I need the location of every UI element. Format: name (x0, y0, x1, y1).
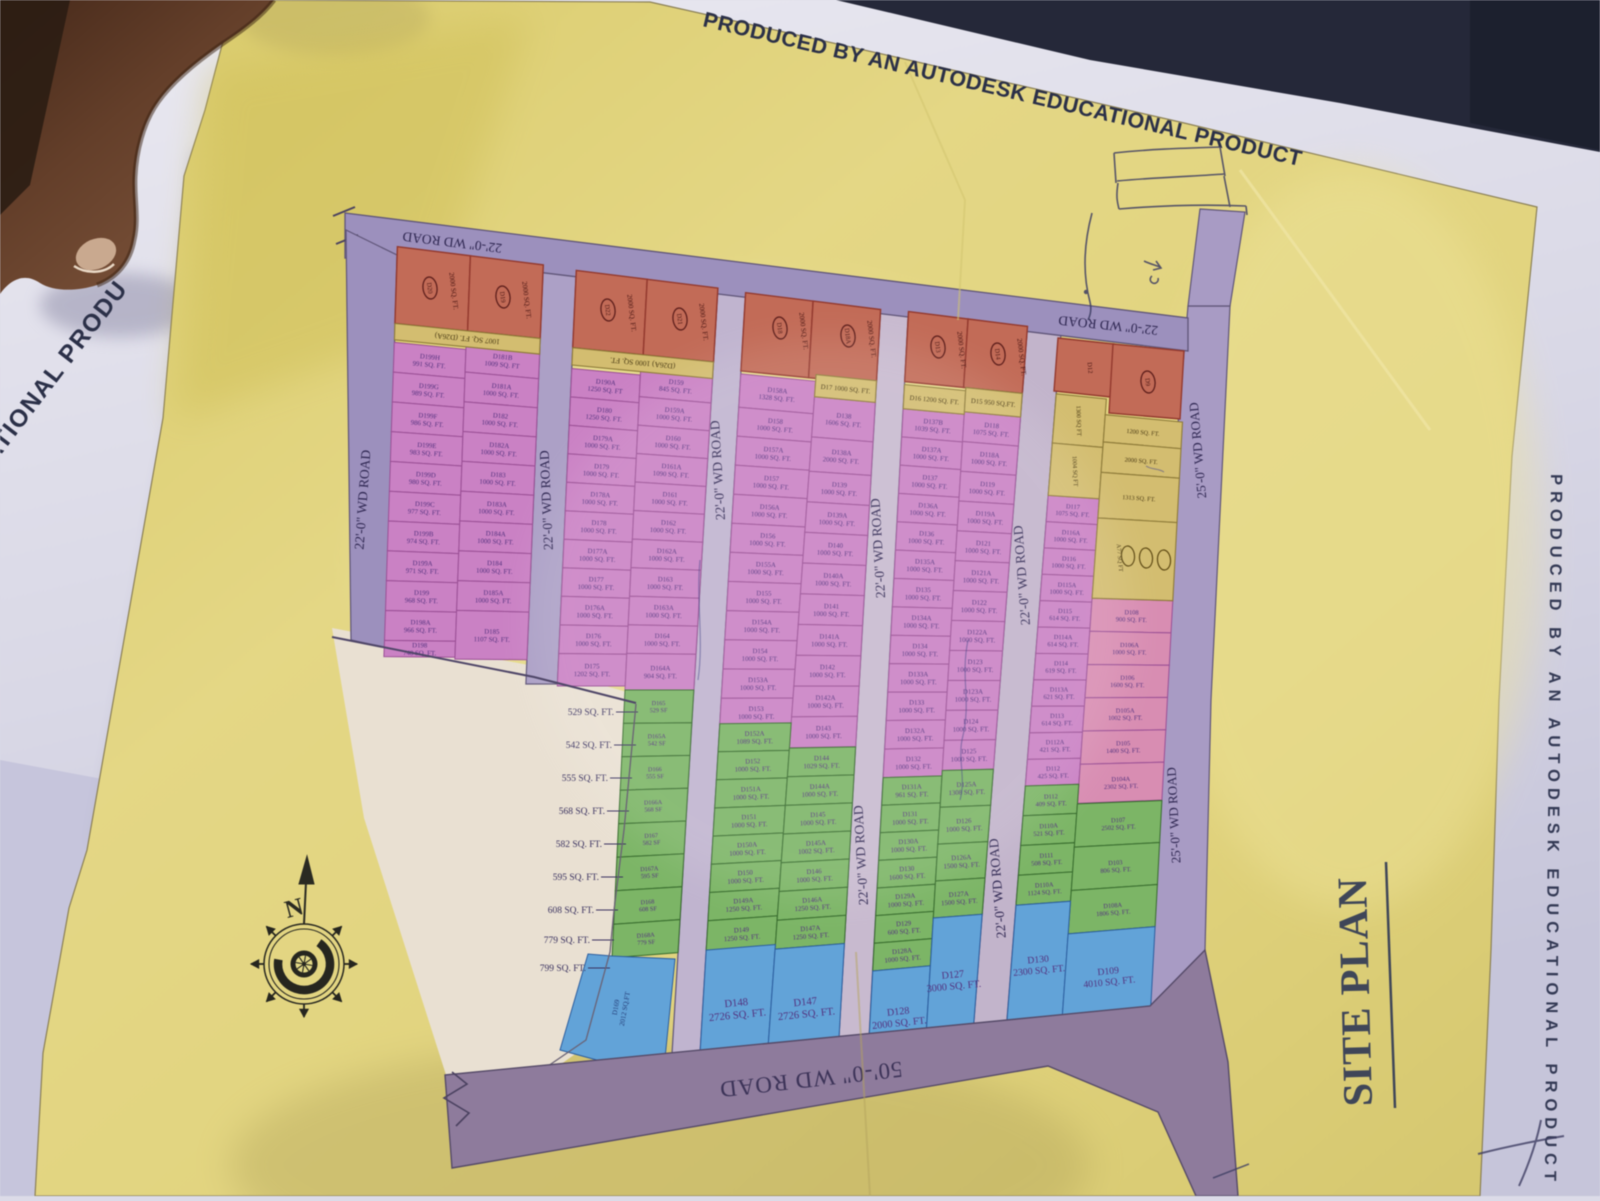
svg-text:D185A: D185A (483, 590, 503, 598)
svg-text:D199A: D199A (412, 560, 432, 568)
svg-text:D199C: D199C (415, 501, 435, 509)
svg-text:D14: D14 (993, 348, 1001, 361)
svg-text:D184: D184 (487, 560, 503, 568)
svg-text:D199: D199 (414, 590, 430, 597)
svg-text:D19: D19 (498, 291, 506, 303)
svg-text:1000 SQ. FT.: 1000 SQ. FT. (475, 597, 512, 605)
svg-text:D13: D13 (933, 341, 941, 353)
svg-text:D129: D129 (896, 920, 912, 928)
svg-text:D9: D9 (1143, 378, 1151, 387)
svg-text:D199D: D199D (416, 471, 436, 479)
svg-text:D12: D12 (1086, 362, 1094, 374)
svg-text:971 SQ. FT.: 971 SQ. FT. (406, 568, 440, 576)
svg-text:582 SQ. FT.: 582 SQ. FT. (556, 840, 602, 850)
svg-text:D149: D149 (734, 926, 750, 934)
svg-text:D105A: D105A (1116, 708, 1135, 715)
svg-text:SITE PLAN: SITE PLAN (1330, 876, 1382, 1107)
svg-text:974 SQ. FT.: 974 SQ. FT. (407, 538, 441, 546)
svg-text:1107 SQ. FT.: 1107 SQ. FT. (474, 636, 511, 644)
svg-text:D183: D183 (490, 471, 506, 479)
svg-text:799 SQ. FT.: 799 SQ. FT. (540, 964, 586, 974)
svg-text:D198: D198 (412, 642, 428, 649)
svg-text:D183A: D183A (487, 501, 507, 509)
svg-text:779 SF: 779 SF (637, 939, 656, 947)
svg-text:D185: D185 (484, 629, 500, 636)
svg-text:595 SQ. FT.: 595 SQ. FT. (553, 873, 599, 883)
svg-text:595 SF: 595 SF (641, 872, 660, 880)
svg-text:568 SQ. FT.: 568 SQ. FT. (559, 807, 605, 817)
svg-text:608 SF: 608 SF (639, 905, 658, 913)
svg-text:D198A: D198A (410, 619, 430, 626)
svg-text:D184A: D184A (486, 530, 506, 538)
svg-text:968 SQ. FT.: 968 SQ. FT. (405, 597, 439, 605)
svg-text:1000 SQ. FT.: 1000 SQ. FT. (476, 568, 513, 576)
svg-text:D22: D22 (603, 304, 611, 316)
svg-text:1300 SQ FT: 1300 SQ FT (1074, 405, 1082, 436)
svg-text:D182: D182 (493, 412, 509, 420)
svg-text:2302 SQ. FT.: 2302 SQ. FT. (1104, 783, 1139, 791)
svg-text:1002 SQ. FT.: 1002 SQ. FT. (1108, 715, 1143, 722)
svg-text:D199B: D199B (414, 530, 434, 538)
svg-text:D105: D105 (1116, 740, 1130, 747)
svg-text:D21: D21 (675, 313, 683, 325)
svg-text:1400 SQ. FT.: 1400 SQ. FT. (1106, 747, 1141, 755)
svg-text:608 SQ. FT.: 608 SQ. FT. (548, 906, 594, 916)
svg-text:779 SQ. FT.: 779 SQ. FT. (544, 936, 590, 946)
svg-text:D18: D18 (775, 322, 783, 334)
svg-text:D20: D20 (425, 282, 433, 294)
svg-text:966 SQ. FT.: 966 SQ. FT. (404, 627, 438, 635)
